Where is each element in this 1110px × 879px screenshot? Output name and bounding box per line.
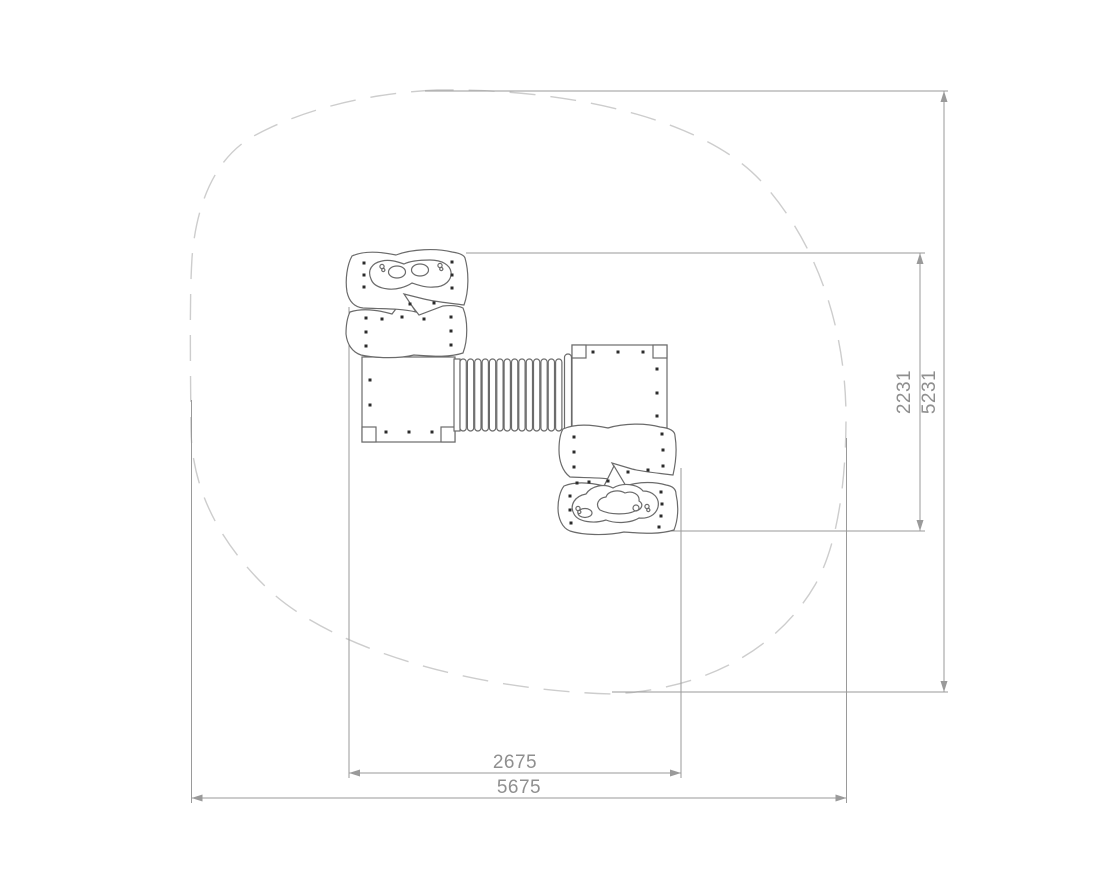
play-structure bbox=[346, 250, 678, 535]
arrow-right-icon bbox=[836, 795, 847, 802]
platform-right-foot-tl bbox=[572, 345, 586, 358]
platform-deck-right bbox=[572, 345, 667, 428]
dimension-label-zone-depth: 5231 bbox=[919, 370, 940, 414]
tunnel-bridge bbox=[454, 354, 572, 434]
arrow-down-icon bbox=[917, 520, 924, 531]
dimension-label-zone-width: 5675 bbox=[497, 777, 541, 798]
dimension-label-equipment-width: 2675 bbox=[493, 752, 537, 773]
plan-drawing-canvas: 2675 5675 2231 5231 bbox=[0, 0, 1110, 879]
arrow-up-icon bbox=[941, 91, 948, 102]
arrow-left-icon bbox=[192, 795, 203, 802]
climbing-rock-left bbox=[346, 250, 468, 358]
platform-right-foot-tr bbox=[653, 345, 667, 358]
platform-left-foot-br bbox=[441, 427, 455, 442]
arrow-down-icon bbox=[941, 681, 948, 692]
arrow-right-icon bbox=[670, 770, 681, 777]
arrow-up-icon bbox=[917, 253, 924, 264]
arrow-left-icon bbox=[349, 770, 360, 777]
bridge-end-plate-left bbox=[454, 359, 460, 431]
playground-plan-drawing: 2675 5675 2231 5231 bbox=[0, 0, 1110, 879]
platform-left-foot-bl bbox=[362, 427, 376, 442]
climbing-rock-right bbox=[558, 424, 678, 534]
dimension-label-equipment-depth: 2231 bbox=[894, 370, 915, 414]
bridge-end-rib-right bbox=[565, 354, 572, 434]
platform-deck-left bbox=[362, 357, 455, 442]
